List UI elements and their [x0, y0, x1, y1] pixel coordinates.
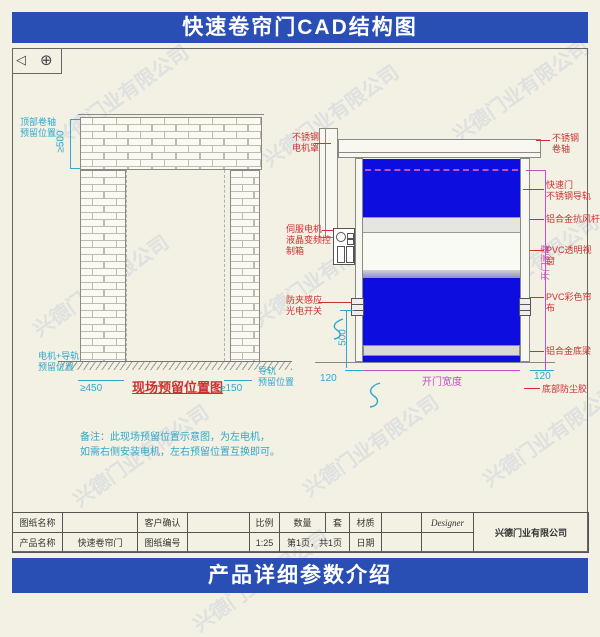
- label-bottom-beam: 铝合金底梁: [546, 346, 591, 357]
- cell-date-label: 日期: [350, 533, 382, 553]
- cell-scale-value: 1:25: [250, 533, 280, 553]
- label-wind-bar: 铝合金抗风杆: [546, 214, 600, 225]
- title-block-table: 图纸名称 客户确认 比例 数量 套 材质 Designer 兴德门业有限公司 产…: [12, 512, 589, 553]
- bottom-banner: 产品详细参数介绍: [12, 558, 588, 593]
- leader-motor-cover: [314, 143, 331, 144]
- floor-line: [315, 362, 555, 363]
- brick-pillar-left: [80, 170, 126, 362]
- leader-bottom-seal: [524, 388, 540, 389]
- cell-material-label: 材质: [350, 513, 382, 533]
- cell-product-name-label: 产品名称: [13, 533, 63, 553]
- leader-roller: [536, 140, 550, 141]
- cell-designer-value: [422, 533, 474, 553]
- label-window: PVC透明视窗: [546, 245, 600, 267]
- label-bottom-seal: 底部防尘胶: [542, 384, 587, 395]
- control-box-panel: [346, 246, 354, 263]
- brick-lintel: [80, 117, 262, 170]
- cell-drawing-name-label: 图纸名称: [13, 513, 63, 533]
- photo-sensor-right: [519, 298, 531, 316]
- leader-rail: [523, 189, 544, 190]
- control-box: [333, 228, 355, 265]
- bottom-beam: [363, 345, 520, 356]
- control-box-button: [347, 239, 354, 245]
- cell-date-value: [382, 533, 422, 553]
- cell-page-info: 第1页，共1页: [280, 533, 350, 553]
- dim-tick: [70, 168, 80, 169]
- roller-dashed-line: [365, 169, 518, 171]
- leader-sensor: [318, 302, 351, 303]
- dim-top-roller-value: ≥500: [56, 125, 67, 159]
- control-box-dial: [336, 232, 346, 242]
- dim-line-left: [78, 380, 124, 381]
- dim-line-top-roller: [70, 119, 71, 169]
- projection-triangle-icon: ◁: [16, 52, 26, 68]
- cell-product-name-value: 快速卷帘门: [63, 533, 138, 553]
- guide-rail-left: [355, 158, 363, 362]
- cell-scale-label: 比例: [250, 513, 280, 533]
- cell-material-value: [382, 513, 422, 533]
- label-curtain: PVC彩色帘布: [546, 292, 600, 314]
- dim-line-rail-left: [345, 370, 363, 371]
- cell-customer-confirm-value: [188, 513, 250, 533]
- control-box-panel: [337, 246, 345, 263]
- dim-rail-right-value: 120: [534, 371, 551, 382]
- note-line2: 如需右侧安装电机，左右预留位置互换即可。: [80, 443, 280, 458]
- label-control-box: 伺服电机 液晶变频控制箱: [286, 224, 332, 257]
- cell-quantity-label: 数量: [280, 513, 326, 533]
- cell-designer-label: Designer: [422, 513, 474, 533]
- dim-right-value: ≥150: [220, 383, 242, 394]
- leader-bottom-beam: [530, 351, 544, 352]
- dim-line-width: [363, 370, 520, 371]
- leader-wind-bar: [530, 219, 544, 220]
- photo-sensor-left: [351, 298, 364, 316]
- dim-sensor-height-value: 500: [338, 325, 349, 351]
- dim-left-value: ≥450: [80, 383, 102, 394]
- left-view-caption: 现场预留位置图: [132, 377, 223, 396]
- note-line1: 备注：此现场预留位置示意图，为左电机，: [80, 428, 270, 443]
- door-curtain: [363, 159, 520, 345]
- label-roller: 不锈钢 卷轴: [552, 133, 579, 155]
- pvc-window-band: [363, 233, 520, 270]
- cell-drawing-name-value: [63, 513, 138, 533]
- motor-column: [319, 128, 338, 238]
- dim-line-right: [224, 380, 252, 381]
- dim-rail-left-value: 120: [320, 373, 337, 384]
- wall-top-line: [78, 114, 264, 115]
- ground-hatch: [58, 361, 292, 370]
- dim-tick: [340, 310, 354, 311]
- cell-company-name: 兴德门业有限公司: [474, 513, 589, 553]
- opening-dashed-line-right: [224, 170, 225, 361]
- circle-cross-icon: ⊕: [40, 51, 53, 69]
- cell-customer-confirm-label: 客户确认: [138, 513, 188, 533]
- top-cover: [338, 139, 541, 158]
- window-shadow: [363, 270, 520, 278]
- cell-drawing-no-label: 图纸编号: [138, 533, 188, 553]
- cell-drawing-no-value: [188, 533, 250, 553]
- label-rail: 快速门 不锈钢导轨: [546, 180, 591, 202]
- title-banner: 快速卷帘门CAD结构图: [12, 12, 588, 43]
- projection-symbol-box: ◁ ⊕: [12, 48, 62, 74]
- dim-height-connector: [526, 170, 545, 171]
- cell-quantity-unit: 套: [326, 513, 350, 533]
- leader-curtain: [530, 297, 544, 298]
- wind-bar-band: [363, 217, 520, 233]
- leader-control-box: [322, 230, 333, 231]
- cable-curve-icon: [366, 382, 386, 408]
- motor-column-inner-line: [325, 129, 326, 237]
- opening-dashed-line-left: [126, 170, 127, 361]
- label-top-roller: 顶部卷轴 预留位置: [20, 117, 56, 139]
- label-rail-reserved: 导轨 预留位置: [258, 366, 294, 388]
- top-cover-inner-line: [339, 152, 540, 153]
- leader-window: [530, 250, 544, 251]
- brick-pillar-right: [230, 170, 260, 362]
- label-sensor: 防夹感应 光电开关: [286, 295, 322, 317]
- label-motor-rail: 电机+导轨 预留位置: [38, 351, 79, 373]
- dim-width-label: 开门宽度: [422, 373, 462, 388]
- dim-tick: [70, 119, 80, 120]
